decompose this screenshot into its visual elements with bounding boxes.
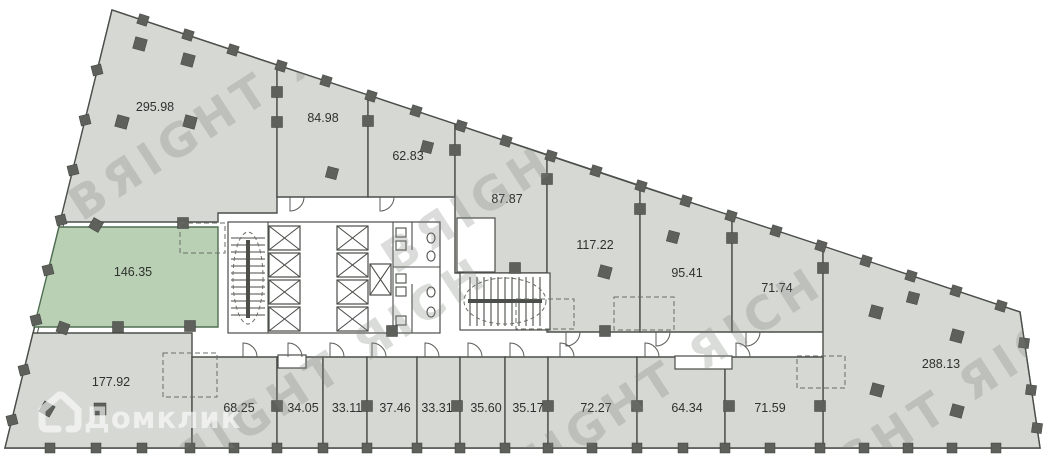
room-area-label: 146.35 bbox=[114, 265, 152, 279]
structural-column bbox=[543, 401, 554, 412]
structural-column bbox=[18, 364, 30, 376]
room-area-label: 35.60 bbox=[470, 401, 501, 415]
room-area-label: 71.59 bbox=[754, 401, 785, 415]
structural-column bbox=[724, 401, 735, 412]
structural-column bbox=[815, 401, 826, 412]
room-area-label: 35.17 bbox=[512, 401, 543, 415]
structural-column bbox=[818, 263, 829, 274]
structural-column bbox=[363, 116, 374, 127]
structural-column bbox=[455, 443, 465, 453]
stair1-rail bbox=[246, 240, 250, 318]
structural-column bbox=[362, 443, 372, 453]
structural-column bbox=[113, 322, 124, 333]
structural-column bbox=[1031, 422, 1042, 433]
structural-column bbox=[450, 145, 461, 156]
floor-plan-viewer: 295.9884.9862.8387.87117.2295.4171.74288… bbox=[0, 0, 1045, 460]
room-area-label: 33.11 bbox=[332, 401, 362, 415]
structural-column bbox=[55, 214, 67, 226]
logo-watermark-text: Домклик bbox=[84, 401, 241, 435]
structural-column bbox=[635, 204, 646, 215]
structural-column bbox=[1025, 384, 1036, 395]
structural-column bbox=[727, 233, 738, 244]
structural-column bbox=[30, 314, 42, 326]
structural-column bbox=[272, 117, 283, 128]
room-area-label: 117.22 bbox=[576, 238, 613, 252]
room-area-label: 295.98 bbox=[136, 100, 174, 114]
room-area-label: 62.83 bbox=[392, 149, 423, 163]
structural-column bbox=[678, 443, 688, 453]
structural-column bbox=[412, 443, 422, 453]
structural-column bbox=[318, 443, 328, 453]
rooms-layer: 295.9884.9862.8387.87117.2295.4171.74288… bbox=[5, 10, 1040, 448]
structural-column bbox=[79, 114, 91, 126]
room-area-label: 177.92 bbox=[92, 375, 130, 389]
room-area-label: 84.98 bbox=[307, 111, 338, 125]
structural-column bbox=[452, 401, 463, 412]
structural-column bbox=[185, 321, 196, 332]
structural-column bbox=[137, 443, 147, 453]
room-area-label: 64.34 bbox=[671, 401, 702, 415]
structural-column bbox=[600, 326, 611, 337]
room-area-label: 37.46 bbox=[379, 401, 410, 415]
room-area-label: 95.41 bbox=[671, 266, 702, 280]
structural-column bbox=[91, 443, 101, 453]
structural-column bbox=[947, 443, 957, 453]
structural-column bbox=[510, 263, 521, 274]
structural-column bbox=[632, 443, 642, 453]
structural-column bbox=[362, 401, 373, 412]
structural-column bbox=[45, 443, 55, 453]
structural-column bbox=[91, 64, 103, 76]
structural-column bbox=[991, 443, 1001, 453]
structural-column bbox=[720, 443, 730, 453]
structural-column bbox=[272, 443, 282, 453]
structural-column bbox=[6, 414, 18, 426]
room-area-label: 33.31 bbox=[421, 401, 452, 415]
structural-column bbox=[765, 443, 775, 453]
structural-column bbox=[42, 264, 54, 276]
floor-plan: 295.9884.9862.8387.87117.2295.4171.74288… bbox=[0, 0, 1045, 460]
